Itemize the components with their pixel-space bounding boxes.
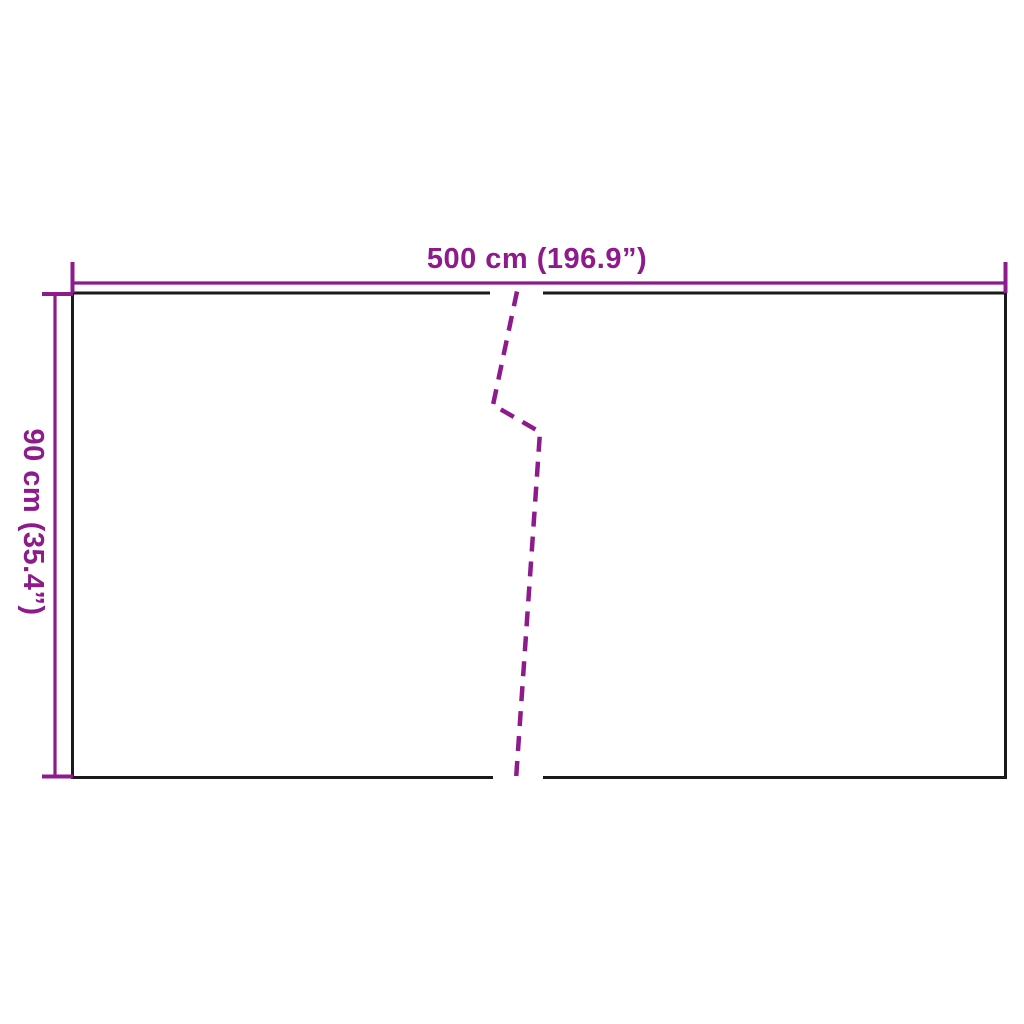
width-dimension-label: 500 cm (196.9”) (427, 243, 647, 275)
height-dimension-label: 90 cm (35.4”) (17, 428, 49, 615)
dimension-diagram: 500 cm (196.9”) 90 cm (35.4”) (0, 0, 1024, 1024)
break-line (493, 292, 540, 780)
product-dimension-image: 500 cm (196.9”) 90 cm (35.4”) (0, 0, 1024, 1024)
panel-outline (73, 293, 1006, 778)
height-dimension: 90 cm (35.4”) (17, 294, 73, 777)
width-dimension: 500 cm (196.9”) (73, 243, 1006, 293)
